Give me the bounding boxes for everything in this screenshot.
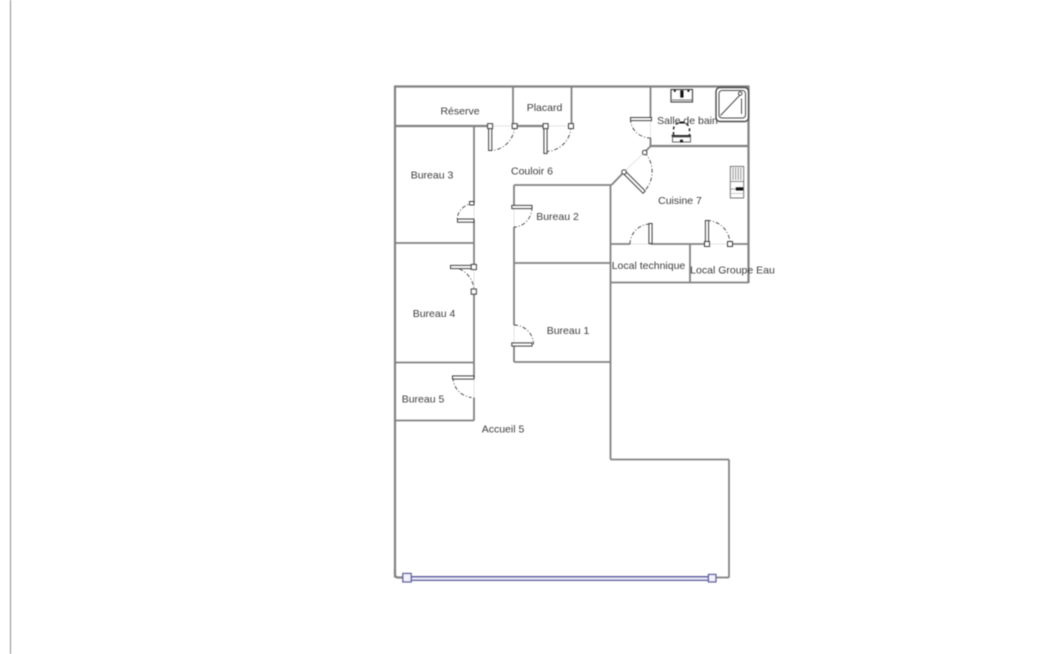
svg-text:Cuisine 7: Cuisine 7 [658,195,702,207]
svg-text:Bureau 3: Bureau 3 [411,170,454,182]
svg-text:Bureau 1: Bureau 1 [547,325,590,337]
svg-text:Bureau 4: Bureau 4 [413,308,456,320]
svg-text:Local technique: Local technique [612,260,686,272]
svg-text:Bureau 5: Bureau 5 [402,394,445,406]
svg-text:Réserve: Réserve [440,106,479,118]
svg-text:Salle de bain: Salle de bain [657,115,718,127]
svg-text:Placard: Placard [527,102,563,114]
svg-text:Couloir 6: Couloir 6 [511,166,553,178]
svg-text:Bureau 2: Bureau 2 [536,211,579,223]
svg-text:Local Groupe Eau: Local Groupe Eau [690,265,775,277]
svg-text:Accueil 5: Accueil 5 [482,424,525,436]
